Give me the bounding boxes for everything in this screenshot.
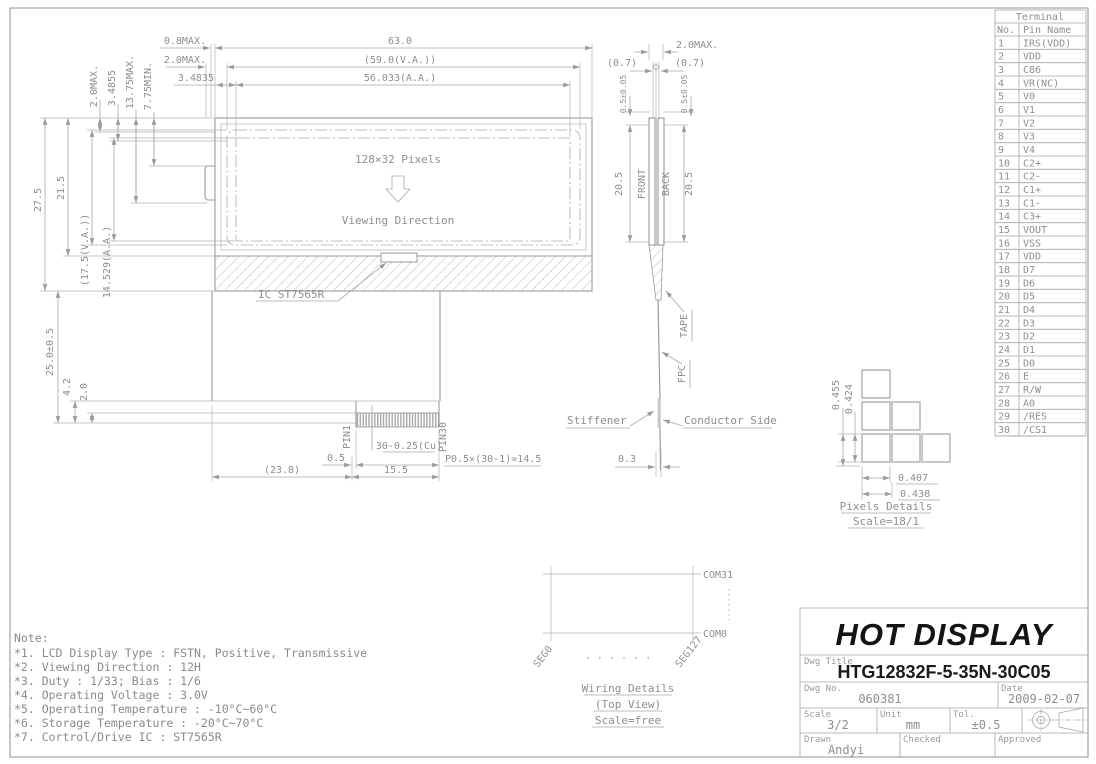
terminal-pin-name: VOUT [1023,225,1047,236]
pixels-details-scale: Scale=18/1 [853,515,919,528]
dim-205-left: 20.5 [614,172,625,196]
tol-value: ±0.5 [972,718,1001,732]
terminal-pin-name: IRS(VDD) [1023,38,1071,49]
dim-175va: (17.5(V.A.)) [80,214,91,286]
pixels-details-title: Pixels Details [840,500,933,513]
terminal-pin-no: 24 [998,345,1010,356]
dim-07-left: (0.7) [607,58,637,69]
note-line: *1. LCD Display Type : FSTN, Positive, T… [14,646,367,660]
terminal-pin-no: 27 [998,385,1010,396]
seg-ellipsis: · · · · · · [585,653,651,664]
pixels-label: 128×32 Pixels [355,153,441,166]
pin1-label: PIN1 [342,425,353,449]
terminal-pin-no: 21 [998,305,1010,316]
terminal-pin-name: D7 [1023,265,1035,276]
terminal-pin-no: 10 [998,158,1010,169]
drawing-sheet: 128×32 Pixels Viewing Direction IC ST756… [0,0,1096,764]
dim-07-right: (0.7) [675,58,705,69]
terminal-pin-no: 23 [998,332,1010,343]
terminal-pin-name: D2 [1023,332,1035,343]
terminal-pin-name: D6 [1023,278,1035,289]
terminal-pin-no: 28 [998,398,1010,409]
terminal-pin-no: 17 [998,252,1010,263]
terminal-pin-no: 7 [998,118,1004,129]
terminal-pin-name: C2- [1023,172,1041,183]
terminal-pin-no: 9 [998,145,1004,156]
dim-0438: 0.438 [900,489,930,500]
dim-side-20max: 2.0MAX. [676,40,718,51]
terminal-pin-name: V4 [1023,145,1035,156]
fpc-label: FPC [677,365,688,383]
dwg-title-value: HTG12832F-5-35N-30C05 [837,662,1050,682]
dim-42: 4.2 [62,378,73,396]
terminal-pin-name: D3 [1023,318,1035,329]
dim-205-right: 20.5 [684,172,695,196]
terminal-col-pin: Pin Name [1023,25,1071,36]
dim-05tape-right: 0.5±0.05 [680,75,689,114]
dim-34855: 3.4855 [107,70,118,106]
terminal-pin-no: 6 [998,105,1004,116]
dim-63: 63.0 [388,36,412,47]
terminal-pin-no: 29 [998,412,1010,423]
terminal-pin-name: V0 [1023,92,1035,103]
dim-215: 21.5 [56,176,67,200]
unit-label: Unit [880,710,902,720]
terminal-pin-no: 2 [998,52,1004,63]
terminal-pin-name: R/W [1023,385,1042,396]
dim-275: 27.5 [33,188,44,212]
dim-05tape-left: 0.5±0.05 [619,75,628,114]
terminal-pin-name: V1 [1023,105,1035,116]
scale-value: 3/2 [827,718,849,732]
wiring-details-title: Wiring Details [582,682,675,695]
ic-label: IC ST7565R [258,288,325,301]
terminal-pin-no: 30 [998,425,1010,436]
dwg-no-value: 060381 [858,692,901,706]
conductor-side-label: Conductor Side [684,414,777,427]
dim-775min: 7.75MIN. [143,62,154,110]
terminal-pin-name: A0 [1023,398,1035,409]
terminal-pin-name: D0 [1023,358,1035,369]
dim-0455: 0.455 [831,380,842,410]
dim-25: 25.0±0.5 [45,328,56,376]
note-line: *2. Viewing Direction : 12H [14,660,201,674]
connector-pins [356,413,439,427]
copper-label: 30-0.25(Cu) [376,441,442,452]
terminal-pin-name: C2+ [1023,158,1041,169]
wiring-details-subtitle: (Top View) [595,698,661,711]
dim-14529aa: 14.529(A.A.) [102,226,113,298]
company-logo: HOT DISPLAY [835,617,1054,652]
terminal-pin-no: 18 [998,265,1010,276]
engineering-drawing: 128×32 Pixels Viewing Direction IC ST756… [0,0,1096,764]
dim-pitch: P0.5×(30-1)=14.5 [445,454,541,465]
dim-1375max: 13.75MAX. [125,55,136,109]
terminal-pin-no: 22 [998,318,1010,329]
terminal-pin-no: 15 [998,225,1010,236]
dim-0407: 0.407 [898,473,928,484]
terminal-pin-no: 26 [998,372,1010,383]
dim-05: 0.5 [327,453,345,464]
terminal-pin-name: C3+ [1023,212,1041,223]
terminal-pin-no: 3 [998,65,1004,76]
terminal-pin-no: 19 [998,278,1010,289]
note-line: *4. Operating Voltage : 3.0V [14,688,208,702]
terminal-pin-name: E [1023,372,1029,383]
tape-label: TAPE [679,314,690,338]
terminal-pin-name: C86 [1023,65,1041,76]
stiffener-label: Stiffener [567,414,627,427]
terminal-pin-name: V3 [1023,132,1035,143]
terminal-col-no: No. [997,25,1015,36]
dim-20max-left: 2.0MAX. [89,65,100,107]
terminal-table-title: Terminal [1016,12,1064,23]
terminal-pin-name: D1 [1023,345,1035,356]
dim-20max-top: 2.0MAX. [164,55,206,66]
dim-20: 2.0 [79,383,90,401]
notes-heading: Note: [14,631,49,645]
dim-238: (23.8) [264,465,300,476]
wiring-details-scale: Scale=free [595,714,661,727]
terminal-pin-no: 25 [998,358,1010,369]
viewing-direction-label: Viewing Direction [342,214,455,227]
terminal-pin-name: C1- [1023,198,1041,209]
terminal-pin-no: 5 [998,92,1004,103]
terminal-pin-name: D5 [1023,292,1035,303]
approved-label: Approved [998,735,1041,745]
terminal-pin-name: C1+ [1023,185,1041,196]
drawn-value: Andyi [828,743,864,757]
terminal-pin-no: 1 [998,38,1004,49]
terminal-pin-name: /RES [1023,412,1047,423]
back-label: BACK [661,172,672,196]
terminal-pin-name: V2 [1023,118,1035,129]
note-line: *3. Duty : 1/33; Bias : 1/6 [14,674,201,688]
ic-chip [381,253,417,262]
terminal-pin-name: VDD [1023,252,1041,263]
terminal-pin-name: VR(NC) [1023,78,1059,89]
terminal-pin-no: 20 [998,292,1010,303]
dim-03: 0.3 [618,454,636,465]
note-line: *7. Cortrol/Drive IC : ST7565R [14,730,222,744]
terminal-pin-name: VSS [1023,238,1041,249]
front-label: FRONT [637,169,648,199]
terminal-pin-no: 13 [998,198,1010,209]
dim-155: 15.5 [384,465,408,476]
dim-08max: 0.8MAX. [164,36,206,47]
dim-56aa: 56.033(A.A.) [364,73,436,84]
unit-value: mm [906,718,920,732]
checked-label: Checked [903,735,941,745]
terminal-pin-no: 4 [998,78,1004,89]
note-line: *5. Operating Temperature : -10°C~60°C [14,702,277,716]
com0-label: COM0 [703,629,727,640]
note-line: *6. Storage Temperature : -20°C~70°C [14,716,263,730]
dim-34835: 3.4835 [178,73,214,84]
stiffener-section [658,398,661,428]
terminal-pin-no: 14 [998,212,1010,223]
dim-59va: (59.0(V.A.)) [364,55,436,66]
date-value: 2009-02-07 [1008,692,1080,706]
terminal-pin-name: /CS1 [1023,425,1047,436]
terminal-pin-no: 12 [998,185,1010,196]
terminal-pin-no: 16 [998,238,1010,249]
terminal-pin-name: D4 [1023,305,1035,316]
com31-label: COM31 [703,570,733,581]
dwg-no-label: Dwg No. [804,684,842,694]
terminal-pin-no: 8 [998,132,1004,143]
terminal-pin-no: 11 [998,172,1010,183]
dim-0424: 0.424 [844,384,855,414]
terminal-pin-name: VDD [1023,52,1041,63]
